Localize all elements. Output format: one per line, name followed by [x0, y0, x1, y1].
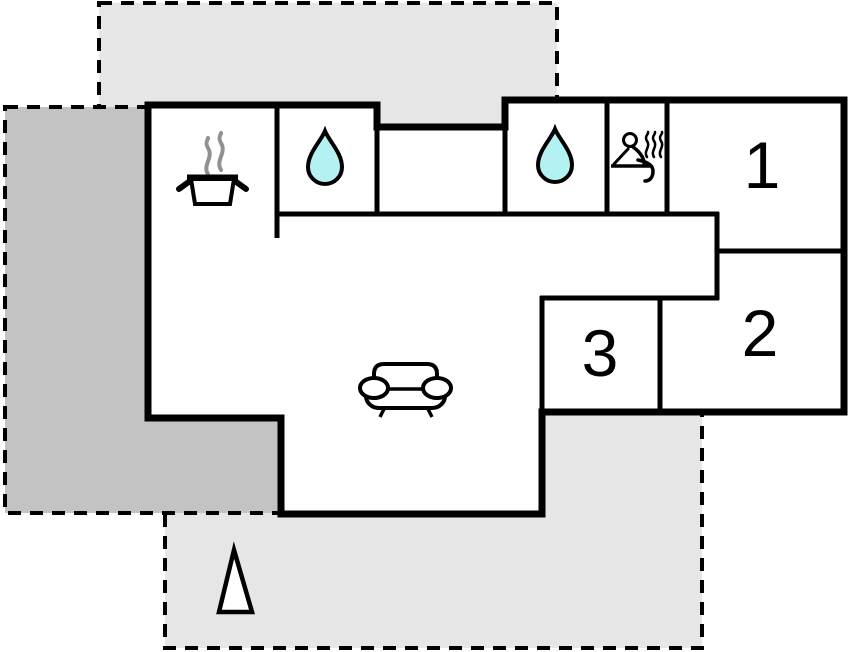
room-2-number: 2: [742, 296, 779, 370]
room-1-number: 1: [744, 128, 781, 202]
floor-plan-drawing: 1 2 3: [0, 0, 850, 652]
floor-plan-page: 1 2 3: [0, 0, 850, 652]
sofa-arm-right: [423, 378, 451, 398]
pot-body: [191, 179, 234, 204]
sofa-icon: [360, 364, 451, 417]
room-3-number: 3: [582, 316, 619, 390]
sofa-arm-left: [360, 378, 388, 398]
